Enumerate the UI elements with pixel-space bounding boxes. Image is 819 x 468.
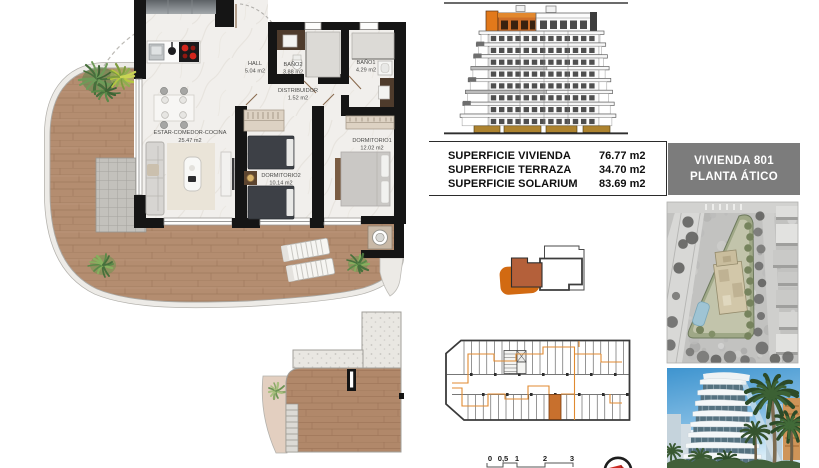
svg-text:1.52 m2: 1.52 m2 xyxy=(288,96,308,102)
svg-text:12.02 m2: 12.02 m2 xyxy=(360,146,383,152)
svg-text:0,5: 0,5 xyxy=(498,454,509,463)
svg-text:0: 0 xyxy=(488,454,492,463)
svg-text:25.47 m2: 25.47 m2 xyxy=(178,138,201,144)
svg-text:DISTRIBUIDOR: DISTRIBUIDOR xyxy=(278,88,318,94)
svg-text:DORMITORIO1: DORMITORIO1 xyxy=(352,138,391,144)
svg-text:DORMITORIO2: DORMITORIO2 xyxy=(261,173,300,179)
svg-text:HALL: HALL xyxy=(248,61,262,67)
svg-text:ESTAR-COMEDOR-COCINA: ESTAR-COMEDOR-COCINA xyxy=(154,130,227,136)
svg-text:1: 1 xyxy=(515,454,520,463)
svg-text:5.04 m2: 5.04 m2 xyxy=(245,69,265,75)
svg-text:10.14 m2: 10.14 m2 xyxy=(269,181,292,187)
svg-text:2: 2 xyxy=(543,454,547,463)
svg-text:3.88 m2: 3.88 m2 xyxy=(283,70,303,76)
svg-text:3: 3 xyxy=(570,454,574,463)
svg-text:BAÑO1: BAÑO1 xyxy=(357,59,376,66)
svg-text:BAÑO2: BAÑO2 xyxy=(284,61,303,68)
svg-text:4.29 m2: 4.29 m2 xyxy=(356,68,376,74)
